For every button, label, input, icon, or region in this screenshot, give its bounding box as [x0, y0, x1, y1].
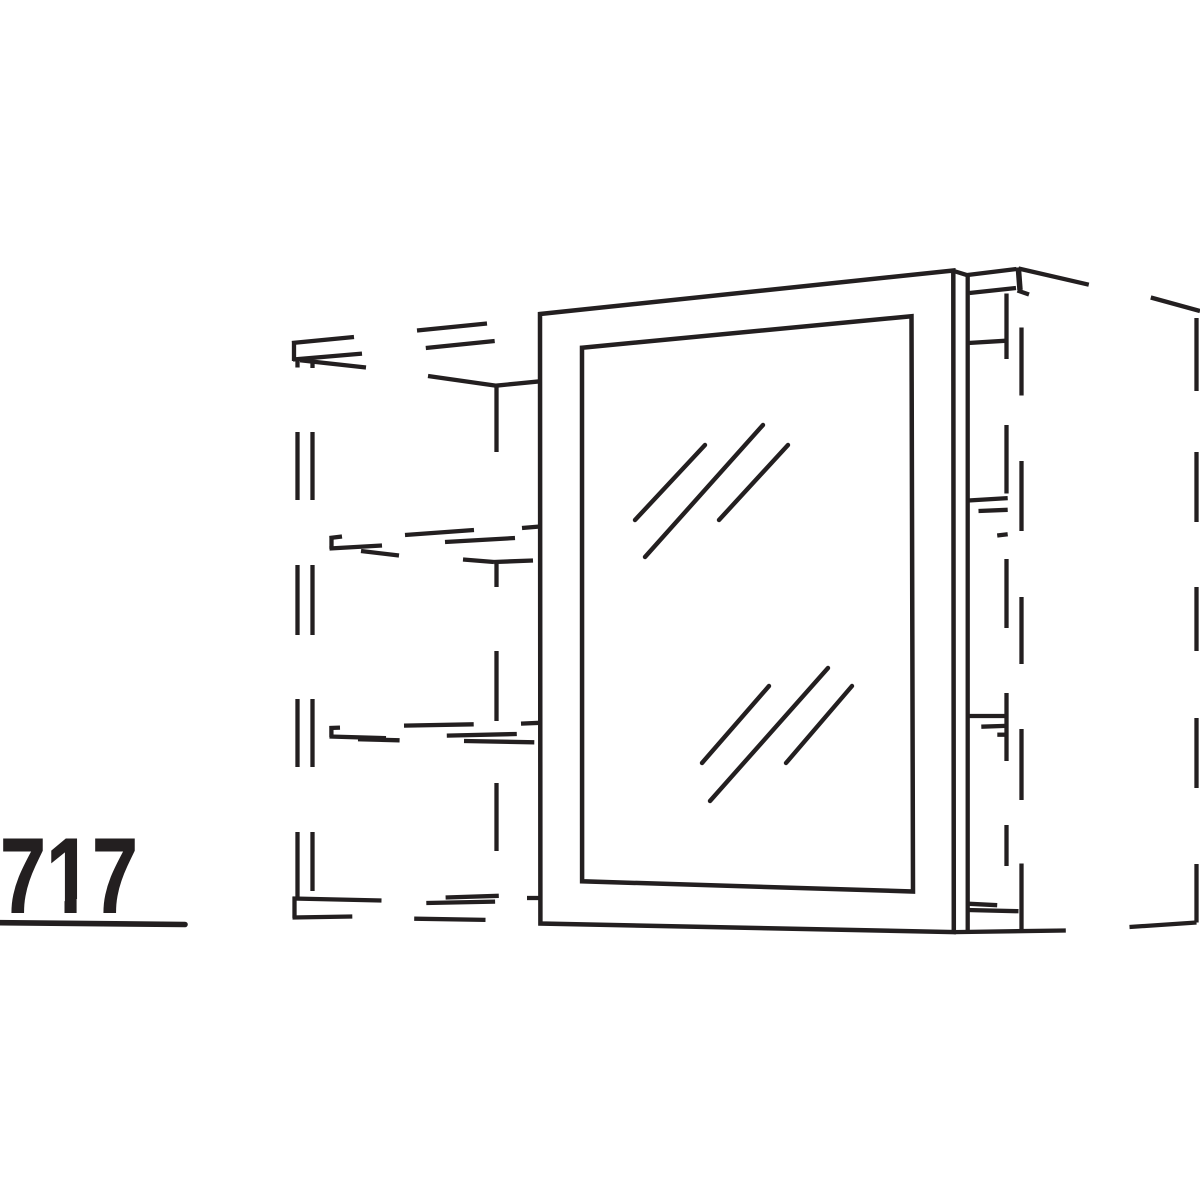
- svg-text:717: 717: [0, 816, 138, 936]
